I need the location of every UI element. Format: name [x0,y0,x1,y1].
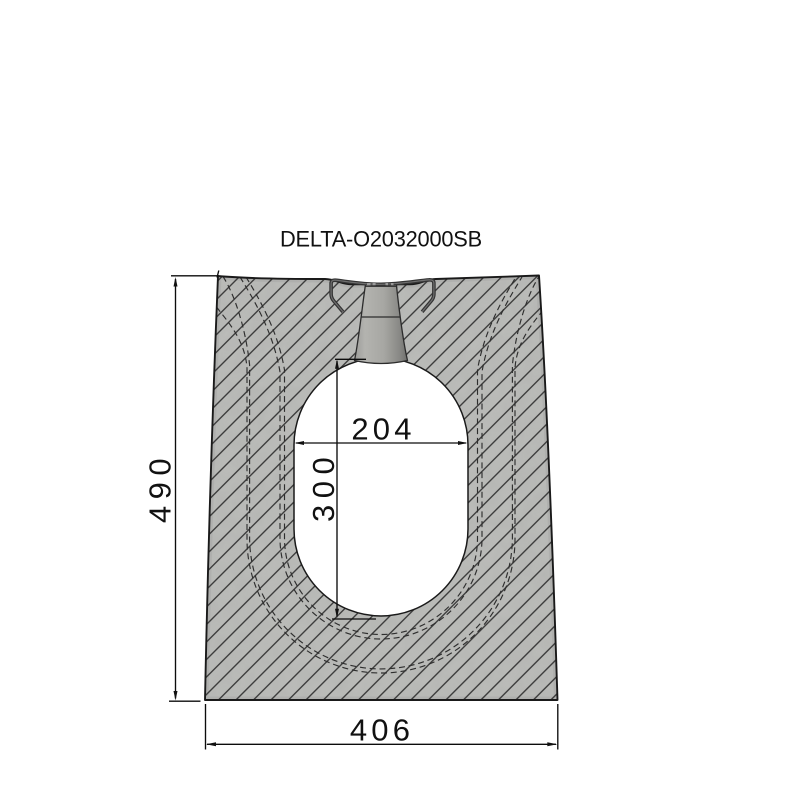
svg-text:300: 300 [306,451,341,522]
svg-text:DELTA-O2032000SB: DELTA-O2032000SB [280,227,482,252]
svg-text:406: 406 [350,713,414,748]
svg-text:490: 490 [143,452,178,523]
svg-text:204: 204 [351,412,415,447]
